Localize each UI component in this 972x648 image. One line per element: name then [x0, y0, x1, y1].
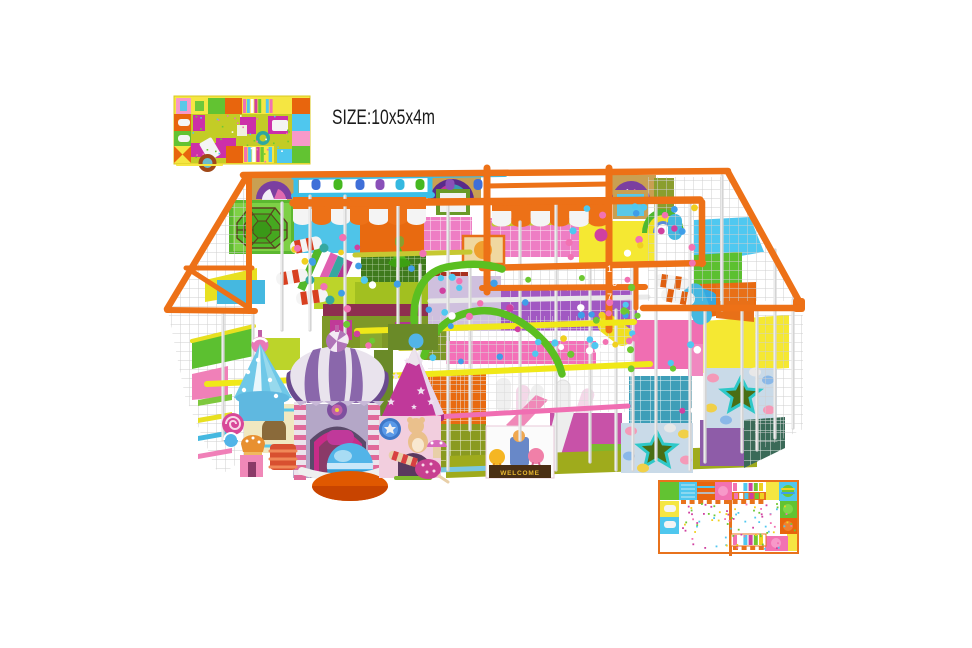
svg-text:WELCOME: WELCOME: [500, 470, 540, 477]
svg-text:1: 1: [607, 264, 612, 274]
svg-text:SIZE:10x5x4m: SIZE:10x5x4m: [332, 106, 435, 129]
svg-text:7: 7: [607, 292, 612, 302]
svg-text:6: 6: [612, 278, 617, 288]
